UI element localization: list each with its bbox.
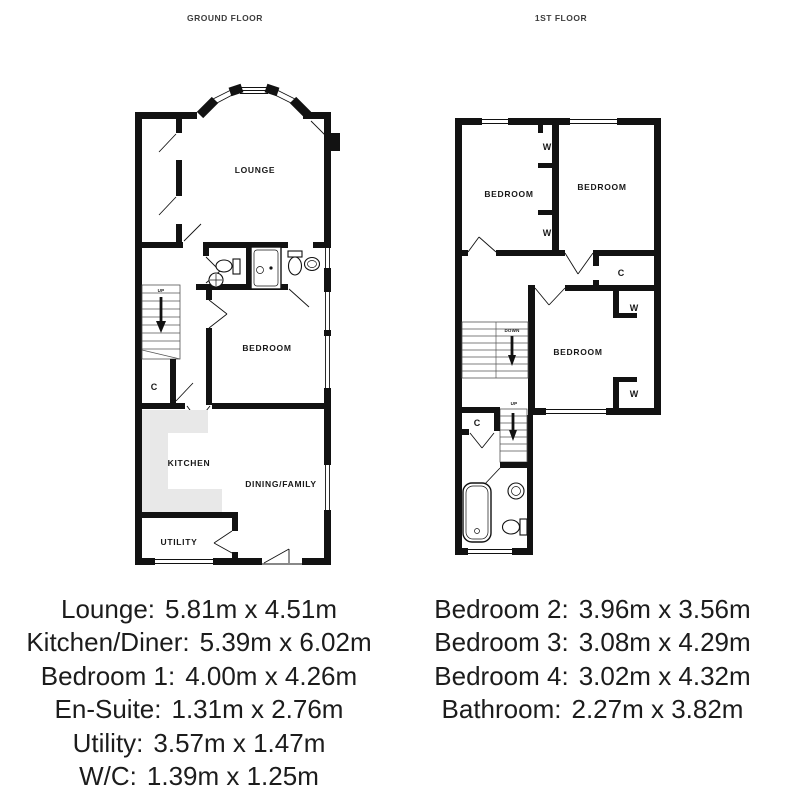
utility-label: UTILITY xyxy=(160,537,197,547)
dimension-size: 5.39m x 6.02m xyxy=(200,626,372,659)
first-floor-plan: C xyxy=(455,118,661,555)
dimension-row-lounge: Lounge: 5.81m x 4.51m xyxy=(0,593,398,626)
dimension-row-bedroom-1: Bedroom 1: 4.00m x 4.26m xyxy=(0,660,398,693)
ensuite-sink xyxy=(305,258,320,271)
ground-bedroom-label: BEDROOM xyxy=(242,343,291,353)
bathroom-sink xyxy=(508,483,524,499)
ensuite-toilet xyxy=(288,251,302,275)
dimension-size: 3.57m x 1.47m xyxy=(153,727,325,760)
wardrobe-label-3: W xyxy=(630,303,639,313)
first-stairs-up: UP xyxy=(455,401,528,486)
ground-closet: C xyxy=(151,359,193,403)
ground-stairs: UP xyxy=(142,285,180,359)
dimension-row-bedroom-4: Bedroom 4: 3.02m x 4.32m xyxy=(398,660,787,693)
dimension-room: Bedroom 4: xyxy=(434,660,568,693)
dimension-row-bathroom: Bathroom: 2.27m x 3.82m xyxy=(398,693,787,726)
floor-plan-page: GROUND FLOOR 1ST FLOOR xyxy=(0,0,787,800)
wardrobe-label-2: W xyxy=(543,228,552,238)
first-stairs-up-label: UP xyxy=(511,401,518,406)
dimension-row-kitchen-diner: Kitchen/Diner: 5.39m x 6.02m xyxy=(0,626,398,659)
ground-stairs-up-label: UP xyxy=(158,288,165,293)
first-floor-dimensions: Bedroom 2: 3.96m x 3.56m Bedroom 3: 3.08… xyxy=(398,593,787,727)
dimension-row-utility: Utility: 3.57m x 1.47m xyxy=(0,727,398,760)
bay-window xyxy=(200,88,308,116)
dimension-row-bedroom-2: Bedroom 2: 3.96m x 3.56m xyxy=(398,593,787,626)
ground-floor-plan: UP C xyxy=(135,88,340,566)
bedroom3-label: BEDROOM xyxy=(484,189,533,199)
bedroom2-label: BEDROOM xyxy=(577,182,626,192)
first-closet-right-label: C xyxy=(618,268,625,278)
bathtub xyxy=(463,483,491,542)
dimension-room: W/C: xyxy=(79,760,137,793)
lounge-label: LOUNGE xyxy=(235,165,276,175)
bedroom4-label: BEDROOM xyxy=(553,347,602,357)
dimension-size: 3.02m x 4.32m xyxy=(579,660,751,693)
first-closet-right: C xyxy=(593,256,625,285)
dimension-row-bedroom-3: Bedroom 3: 3.08m x 4.29m xyxy=(398,626,787,659)
french-door xyxy=(262,549,302,565)
dining-family-label: DINING/FAMILY xyxy=(245,479,317,489)
dimension-row-wc: W/C: 1.39m x 1.25m xyxy=(0,760,398,793)
dimension-size: 3.96m x 3.56m xyxy=(579,593,751,626)
dimension-size: 4.00m x 4.26m xyxy=(185,660,357,693)
dimension-size: 1.31m x 2.76m xyxy=(171,693,343,726)
dimension-room: Bedroom 3: xyxy=(434,626,568,659)
dimension-room: Bedroom 2: xyxy=(434,593,568,626)
bathroom-toilet xyxy=(503,519,528,535)
dimension-size: 5.81m x 4.51m xyxy=(165,593,337,626)
dimension-room: Utility: xyxy=(73,727,144,760)
wc-sink xyxy=(209,273,223,287)
dimension-row-en-suite: En-Suite: 1.31m x 2.76m xyxy=(0,693,398,726)
shower xyxy=(251,247,281,289)
dimension-size: 2.27m x 3.82m xyxy=(571,693,743,726)
floor-plan-drawing: UP C xyxy=(0,0,787,590)
ground-closet-label: C xyxy=(151,382,158,392)
dimension-room: Kitchen/Diner: xyxy=(26,626,189,659)
wardrobe-label-1: W xyxy=(543,142,552,152)
first-closet-bottom-label: C xyxy=(474,418,481,428)
dimension-room: Bathroom: xyxy=(442,693,562,726)
stairs-down-label: DOWN xyxy=(504,328,519,333)
wardrobe-label-4: W xyxy=(630,389,639,399)
kitchen-label: KITCHEN xyxy=(168,458,211,468)
dimension-size: 3.08m x 4.29m xyxy=(579,626,751,659)
first-stairs-down: DOWN xyxy=(462,322,528,378)
dimension-room: Lounge: xyxy=(61,593,155,626)
dimension-size: 1.39m x 1.25m xyxy=(147,760,319,793)
dimension-room: En-Suite: xyxy=(55,693,162,726)
ground-hallway xyxy=(159,119,182,242)
ground-bedroom-walls xyxy=(206,290,227,405)
dimension-room: Bedroom 1: xyxy=(41,660,175,693)
ground-floor-dimensions: Lounge: 5.81m x 4.51m Kitchen/Diner: 5.3… xyxy=(0,593,398,793)
